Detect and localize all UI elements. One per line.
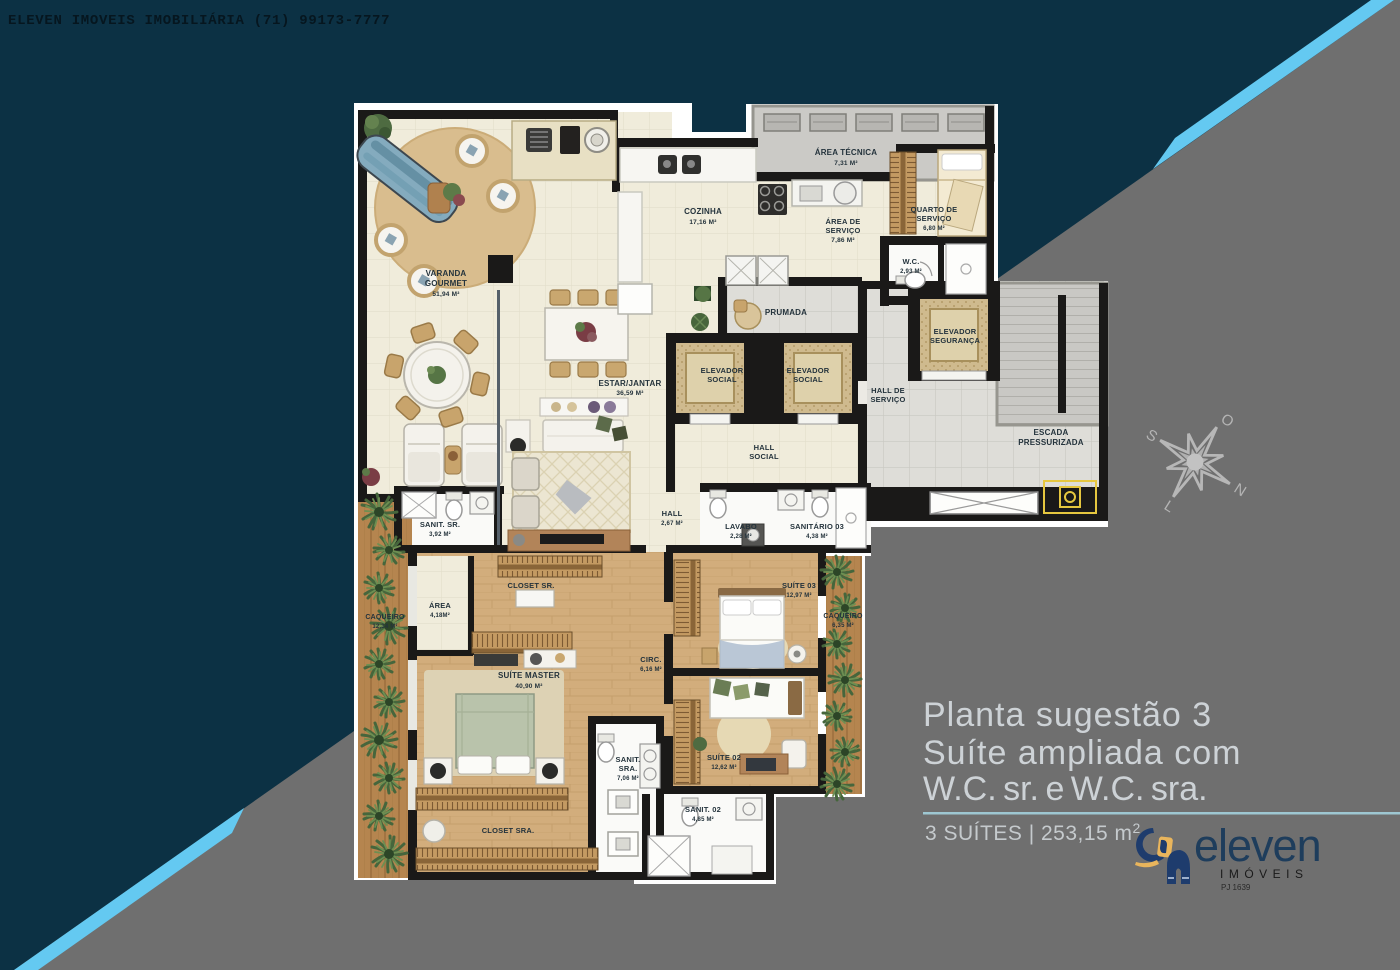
svg-text:7,31 M²: 7,31 M² [834,160,858,167]
svg-text:2,28 M²: 2,28 M² [730,533,752,540]
svg-text:7,86 M²: 7,86 M² [831,237,855,244]
svg-text:3 SUÍTES | 253,15 m2: 3 SUÍTES | 253,15 m2 [925,820,1141,845]
svg-text:SERVIÇO: SERVIÇO [916,214,951,223]
svg-text:VARANDA: VARANDA [426,269,467,278]
svg-text:12,62 M²: 12,62 M² [711,764,736,771]
svg-text:2,67 M²: 2,67 M² [661,520,683,527]
svg-text:Planta sugestão 3: Planta sugestão 3 [923,696,1212,734]
svg-text:SANIT. 02: SANIT. 02 [685,805,721,814]
svg-text:ÁREA TÉCNICA: ÁREA TÉCNICA [815,148,878,157]
svg-text:HALL: HALL [662,509,683,518]
svg-text:40,90 M²: 40,90 M² [515,683,543,690]
svg-text:Suíte ampliada com: Suíte ampliada com [923,734,1242,772]
svg-text:ESTAR/JANTAR: ESTAR/JANTAR [599,379,662,388]
svg-text:17,16 M²: 17,16 M² [689,219,717,226]
svg-text:HALL DE: HALL DE [871,386,905,395]
svg-text:SANIT.: SANIT. [616,755,641,764]
svg-text:4,85 M²: 4,85 M² [692,816,714,823]
svg-text:6,35 M²: 6,35 M² [832,622,854,629]
svg-text:36,59 M²: 36,59 M² [616,390,644,397]
svg-text:4,18M²: 4,18M² [430,612,450,619]
svg-text:PRUMADA: PRUMADA [765,308,807,317]
svg-text:6,80 M²: 6,80 M² [923,225,945,232]
svg-text:ÁREA: ÁREA [429,601,451,610]
svg-text:SRA.: SRA. [619,764,638,773]
svg-text:SOCIAL: SOCIAL [793,375,823,384]
svg-text:6,16 M²: 6,16 M² [640,666,662,673]
svg-text:PJ 1639: PJ 1639 [1221,883,1251,892]
svg-text:3,92 M²: 3,92 M² [429,531,451,538]
svg-text:CIRC.: CIRC. [640,655,661,664]
svg-text:CAQUEIRO: CAQUEIRO [365,614,405,621]
svg-text:ELEVADOR: ELEVADOR [701,366,744,375]
svg-text:ELEVEN IMOVEIS IMOBILIÁRIA (71: ELEVEN IMOVEIS IMOBILIÁRIA (71) 99173-77… [8,11,390,29]
svg-text:7,06 M²: 7,06 M² [617,775,639,782]
svg-text:W.C.: W.C. [902,257,919,266]
svg-text:ESCADA: ESCADA [1034,428,1069,437]
svg-text:CLOSET SR.: CLOSET SR. [507,581,554,590]
svg-text:CAQUEIRO: CAQUEIRO [823,613,863,620]
svg-text:2,93 M²: 2,93 M² [900,268,922,275]
svg-text:COZINHA: COZINHA [684,207,722,216]
svg-text:SANIT. SR.: SANIT. SR. [420,520,460,529]
svg-text:4,38 M²: 4,38 M² [806,533,828,540]
svg-text:12,34 M²: 12,34 M² [372,623,397,630]
svg-text:51,94 M²: 51,94 M² [432,291,460,298]
svg-text:SUÍTE 02: SUÍTE 02 [707,753,741,762]
svg-text:IMÓVEIS: IMÓVEIS [1220,866,1309,881]
svg-text:SERVIÇO: SERVIÇO [870,395,905,404]
svg-text:ELEVADOR: ELEVADOR [787,366,830,375]
svg-text:12,97 M²: 12,97 M² [786,592,811,599]
svg-text:SUÍTE MASTER: SUÍTE MASTER [498,671,560,680]
svg-text:LAVABO: LAVABO [725,522,757,531]
svg-text:SUÍTE 03: SUÍTE 03 [782,581,816,590]
svg-text:SERVIÇO: SERVIÇO [825,226,860,235]
svg-text:W.C. sr. e W.C. sra.: W.C. sr. e W.C. sra. [923,770,1208,808]
svg-text:eleven: eleven [1194,820,1321,871]
svg-text:HALL: HALL [754,443,775,452]
svg-text:GOURMET: GOURMET [425,279,467,288]
svg-text:SEGURANÇA: SEGURANÇA [930,336,981,345]
svg-text:CLOSET SRA.: CLOSET SRA. [482,826,535,835]
svg-text:ÁREA DE: ÁREA DE [826,217,861,226]
svg-text:ELEVADOR: ELEVADOR [934,327,977,336]
svg-text:SANITÁRIO 03: SANITÁRIO 03 [790,522,844,531]
svg-text:SOCIAL: SOCIAL [749,452,779,461]
svg-text:QUARTO DE: QUARTO DE [911,205,958,214]
svg-text:PRESSURIZADA: PRESSURIZADA [1018,438,1084,447]
svg-text:SOCIAL: SOCIAL [707,375,737,384]
